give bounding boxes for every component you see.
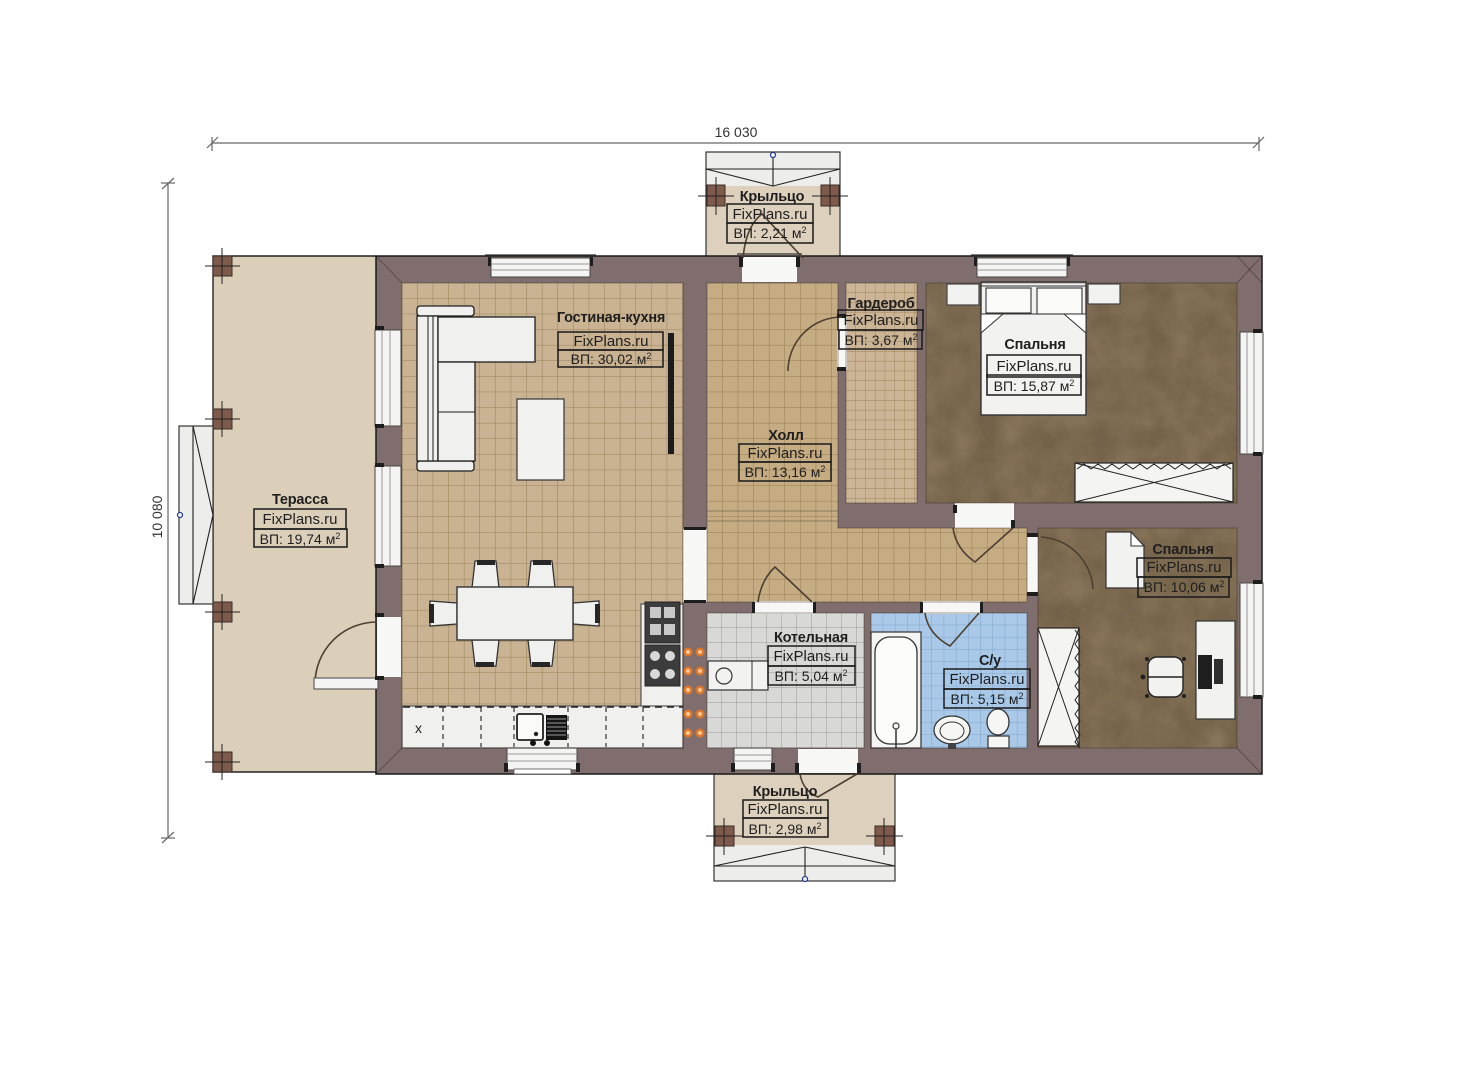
svg-text:Крыльцо: Крыльцо [753,784,818,800]
svg-text:FixPlans.ru: FixPlans.ru [747,801,822,818]
svg-text:ВП: 13,16 м2: ВП: 13,16 м2 [745,464,826,480]
svg-text:FixPlans.ru: FixPlans.ru [262,511,337,528]
svg-text:ВП: 5,15 м2: ВП: 5,15 м2 [951,691,1024,707]
svg-text:FixPlans.ru: FixPlans.ru [773,648,848,665]
svg-text:ВП: 2,21 м2: ВП: 2,21 м2 [734,225,807,241]
svg-text:FixPlans.ru: FixPlans.ru [732,206,807,223]
svg-text:ВП: 19,74 м2: ВП: 19,74 м2 [260,531,341,547]
svg-text:Спальня: Спальня [1004,337,1065,353]
svg-text:FixPlans.ru: FixPlans.ru [843,312,918,329]
svg-text:ВП: 2,98 м2: ВП: 2,98 м2 [749,821,822,837]
svg-text:С/у: С/у [979,653,1001,669]
svg-text:x: x [415,720,422,736]
svg-text:FixPlans.ru: FixPlans.ru [573,333,648,350]
svg-text:Гостиная-кухня: Гостиная-кухня [557,310,665,326]
svg-text:ВП: 30,02 м2: ВП: 30,02 м2 [571,351,652,367]
svg-text:Котельная: Котельная [774,630,848,646]
svg-text:ВП: 3,67 м2: ВП: 3,67 м2 [845,332,918,348]
svg-text:FixPlans.ru: FixPlans.ru [996,358,1071,375]
svg-text:Крыльцо: Крыльцо [740,189,805,205]
svg-text:FixPlans.ru: FixPlans.ru [747,445,822,462]
svg-text:16 030: 16 030 [715,124,758,140]
svg-text:ВП: 5,04 м2: ВП: 5,04 м2 [775,668,848,684]
svg-text:Терасса: Терасса [272,492,329,508]
svg-text:10 080: 10 080 [149,495,165,538]
svg-text:ВП: 15,87 м2: ВП: 15,87 м2 [994,378,1075,394]
svg-text:FixPlans.ru: FixPlans.ru [949,671,1024,688]
svg-text:ВП: 10,06 м2: ВП: 10,06 м2 [1144,579,1225,595]
svg-text:Спальня: Спальня [1152,542,1213,558]
svg-text:Холл: Холл [768,428,804,444]
svg-text:FixPlans.ru: FixPlans.ru [1146,559,1221,576]
